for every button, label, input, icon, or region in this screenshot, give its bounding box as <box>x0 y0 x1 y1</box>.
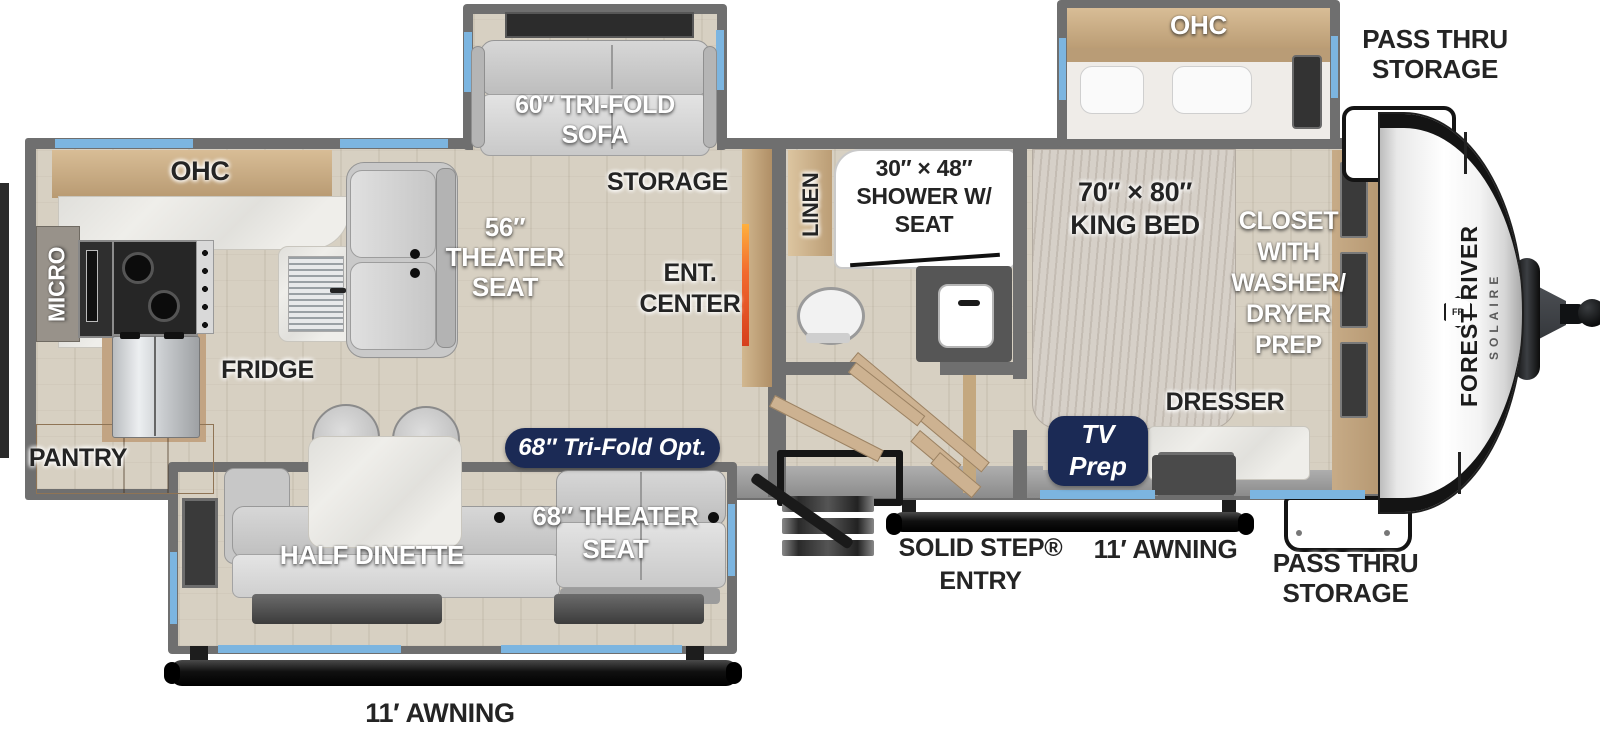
bath-wall-segment <box>786 362 856 375</box>
pt-top-line2: STORAGE <box>1372 54 1498 84</box>
theater-seat-68-label: 68″ THEATER SEAT <box>518 500 713 566</box>
step-tread <box>782 540 874 556</box>
theater-seat-56-cushion <box>350 170 436 258</box>
window-top-kitchen <box>55 139 193 148</box>
sofa-slide-out: 60″ TRI-FOLD SOFA <box>463 4 727 150</box>
storage-label: STORAGE <box>595 168 740 197</box>
tv-prep-line1: TV <box>1081 418 1114 450</box>
dinette-table <box>308 436 462 548</box>
ent-line1: ENT. <box>664 258 717 289</box>
screw-icon <box>1384 530 1390 536</box>
bed-ohc-label: OHC <box>1067 10 1330 41</box>
awning-door-label: 11′ AWNING <box>1068 534 1263 565</box>
window-bottom-bedroom-2 <box>1250 490 1365 499</box>
closet-line4: DRYER <box>1246 299 1331 330</box>
dresser-label: DRESSER <box>1150 388 1300 417</box>
pillow-right <box>1172 66 1252 114</box>
bed-slide-window-icon <box>1292 55 1322 129</box>
wall-bath-bedroom <box>1013 149 1027 379</box>
th56-line3: SEAT <box>472 272 538 302</box>
solid-step-line2: ENTRY <box>939 565 1021 598</box>
shower-line3: SEAT <box>895 210 953 238</box>
burner-icon <box>122 252 154 284</box>
kitchen-ohc-label: OHC <box>140 156 260 187</box>
closet-line5: PREP <box>1255 330 1322 361</box>
fridge <box>112 336 200 438</box>
awning-bar-cap <box>1238 513 1254 535</box>
shower-line2: SHOWER W/ <box>856 182 991 210</box>
pillow-left <box>1080 66 1144 114</box>
tv-prep-badge: TV Prep <box>1048 416 1148 486</box>
king-bed-name: KING BED <box>1070 209 1200 242</box>
sofa-label-line1: 60″ TRI-FOLD <box>515 90 675 120</box>
fridge-door-split <box>154 336 156 436</box>
rear-bumper <box>0 183 9 458</box>
kitchen-sink <box>288 256 344 332</box>
theater-seat-56-label: 56″ THEATER SEAT <box>440 212 570 302</box>
solid-step-line1: SOLID STEP® <box>899 532 1063 565</box>
th68-line1: 68″ THEATER <box>532 500 698 533</box>
cooktop-knobs <box>196 240 214 334</box>
footrest-shadow <box>554 594 704 624</box>
sofa-slide-window-right <box>716 30 724 90</box>
closet-line2: WITH <box>1257 237 1320 268</box>
brand-rule <box>1464 132 1467 174</box>
th56-line2: THEATER <box>446 242 565 272</box>
ent-center-label: ENT. CENTER <box>620 258 760 320</box>
theater-seat-56-cushion <box>350 262 436 350</box>
dinette-window-bottom-2 <box>501 645 682 653</box>
ent-line2: CENTER <box>640 289 741 320</box>
wall-bath-bedroom <box>1013 430 1027 498</box>
cooktop <box>112 240 198 336</box>
awning-bar-rear <box>170 660 738 686</box>
tri-fold-option-badge: 68″ Tri-Fold Opt. <box>505 428 720 468</box>
shower-size: 30″ × 48″ <box>876 154 973 182</box>
closet-line3: WASHER/ <box>1231 268 1346 299</box>
brand-rule <box>1458 452 1461 494</box>
rv-floorplan: 60″ TRI-FOLD SOFA OHC 70″ × 80″ KING BED… <box>0 0 1600 747</box>
fridge-hinge-icon <box>164 332 184 339</box>
awning-rear-label: 11′ AWNING <box>330 698 550 729</box>
pantry-label: PANTRY <box>18 444 138 473</box>
tri-fold-sofa-back <box>480 40 710 96</box>
pass-thru-bottom-label: PASS THRU STORAGE <box>1258 548 1433 608</box>
utility-box <box>1152 455 1236 495</box>
awning-bar-cap <box>164 662 180 684</box>
bath-wall-segment <box>940 362 1016 375</box>
cupholder-icon <box>410 249 420 259</box>
burner-icon <box>148 290 180 322</box>
screw-icon <box>1296 530 1302 536</box>
dinette-slide-window-icon <box>182 498 218 588</box>
linen-label: LINEN <box>794 156 828 254</box>
pt-bot-line2: STORAGE <box>1283 578 1409 608</box>
fridge-hinge-icon <box>120 332 140 339</box>
king-bed-size: 70″ × 80″ <box>1078 176 1192 209</box>
bed-slide-window-left <box>1059 38 1066 100</box>
toilet-base <box>806 333 850 343</box>
pass-thru-top-label: PASS THRU STORAGE <box>1350 24 1520 84</box>
footrest-shadow <box>252 594 442 624</box>
brand-name: FOREST RIVER <box>1456 168 1483 464</box>
micro-label: MICRO <box>40 234 74 334</box>
th68-line2: SEAT <box>582 533 648 566</box>
bed-slide-window-right <box>1331 36 1338 98</box>
shower-label: 30″ × 48″ SHOWER W/ SEAT <box>836 154 1012 238</box>
kitchen-faucet-icon <box>330 288 346 293</box>
bath-faucet-icon <box>958 300 980 306</box>
window-bottom-bedroom-1 <box>1040 490 1155 499</box>
cupholder-icon <box>410 268 420 278</box>
dinette-window-bottom-1 <box>218 645 401 653</box>
bed-headboard <box>1067 48 1330 62</box>
solid-step-entry-label: SOLID STEP® ENTRY <box>878 532 1083 598</box>
hitch-coupler-icon <box>1578 299 1600 327</box>
closet-label: CLOSET WITH WASHER/ DRYER PREP <box>1206 206 1371 361</box>
dinette-window-right <box>728 504 735 576</box>
closet-line1: CLOSET <box>1239 206 1339 237</box>
cupholder-icon <box>494 512 505 523</box>
sofa-slide-window-icon <box>505 12 694 38</box>
pt-top-line1: PASS THRU <box>1362 24 1508 54</box>
fridge-label: FRIDGE <box>205 356 330 385</box>
th56-line1: 56″ <box>485 212 525 242</box>
pt-bot-line1: PASS THRU <box>1273 548 1419 578</box>
sofa-cushion-split <box>611 45 613 89</box>
sofa-label: 60″ TRI-FOLD SOFA <box>463 90 727 150</box>
window-top-living <box>340 139 448 148</box>
bath-sink <box>938 284 994 348</box>
awning-bar-door-side <box>893 512 1245 532</box>
sofa-label-line2: SOFA <box>562 120 629 150</box>
oven-door <box>86 250 98 322</box>
model-name: SOLAIRE <box>1486 216 1502 416</box>
tv-prep-line2: Prep <box>1069 450 1127 482</box>
bed-slide-out: OHC <box>1057 0 1340 147</box>
half-dinette-label: HALF DINETTE <box>262 540 482 571</box>
dinette-window-left <box>170 552 177 624</box>
awning-bar-cap <box>726 662 742 684</box>
